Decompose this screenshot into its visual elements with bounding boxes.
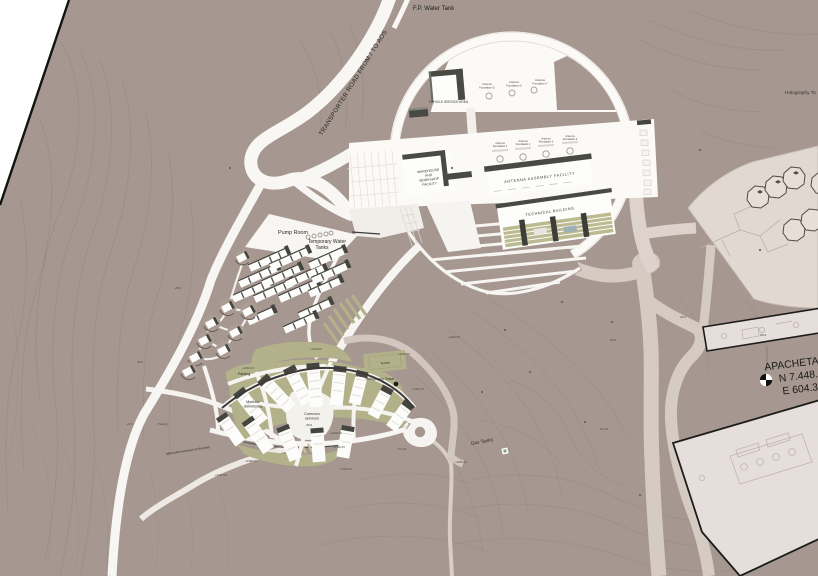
svg-text:Tanks: Tanks <box>315 245 329 251</box>
svg-text:+2398.00: +2398.00 <box>245 459 257 463</box>
svg-text:+2400.00: +2400.00 <box>330 431 342 435</box>
svg-text:+2402.50: +2402.50 <box>448 335 460 339</box>
svg-text:+2397.00: +2397.00 <box>215 473 227 477</box>
svg-text:Parking: Parking <box>238 372 250 376</box>
svg-text:+2404.00: +2404.00 <box>310 347 322 351</box>
svg-text:15 mH: 15 mH <box>398 447 406 451</box>
svg-text:+2656.00: +2656.00 <box>455 460 467 464</box>
svg-text:Modular: Modular <box>246 400 260 404</box>
svg-text:Foundation 7: Foundation 7 <box>532 81 548 85</box>
svg-text:F.P. Water Tank: F.P. Water Tank <box>413 6 455 12</box>
svg-text:Parking: Parking <box>158 422 168 426</box>
svg-text:services: services <box>305 416 319 420</box>
svg-text:Pump Room: Pump Room <box>278 230 308 236</box>
svg-text:15 mH: 15 mH <box>600 427 608 431</box>
svg-text:Holography To: Holography To <box>785 90 816 96</box>
svg-text:+2404.00: +2404.00 <box>242 366 254 370</box>
svg-text:2611: 2611 <box>680 315 686 319</box>
svg-text:Foundation 4: Foundation 4 <box>563 138 578 141</box>
svg-text:VEHICLE SERVICE AREA: VEHICLE SERVICE AREA <box>429 100 469 104</box>
svg-text:dormitories: dormitories <box>244 404 263 408</box>
svg-text:Foundation 3: Foundation 3 <box>539 141 554 144</box>
svg-text:+2392.00: +2392.00 <box>340 467 352 471</box>
svg-text:+2403.75: +2403.75 <box>412 387 424 391</box>
svg-text:Antenna: Antenna <box>509 80 519 84</box>
svg-text:Foundation 2: Foundation 2 <box>516 143 531 146</box>
svg-text:+2403.00: +2403.00 <box>355 374 367 378</box>
svg-text:2612: 2612 <box>610 338 617 342</box>
svg-text:+2404.75: +2404.75 <box>398 352 410 356</box>
svg-text:Antenna: Antenna <box>535 78 545 82</box>
svg-text:2616: 2616 <box>306 423 313 427</box>
svg-text:Foundation 1: Foundation 1 <box>493 145 508 148</box>
svg-text:2615: 2615 <box>175 286 182 290</box>
svg-text:Holography Tower: Holography Tower <box>366 377 396 381</box>
svg-text:Foundation 6: Foundation 6 <box>506 83 522 87</box>
svg-text:24.5: 24.5 <box>127 422 133 426</box>
svg-text:Antenna: Antenna <box>482 82 492 86</box>
svg-text:3611: 3611 <box>137 360 143 364</box>
svg-text:Common: Common <box>304 412 319 416</box>
svg-text:2613: 2613 <box>760 333 767 337</box>
svg-text:Foundation 5: Foundation 5 <box>479 85 495 89</box>
svg-text:+2392.00: +2392.00 <box>333 445 345 449</box>
